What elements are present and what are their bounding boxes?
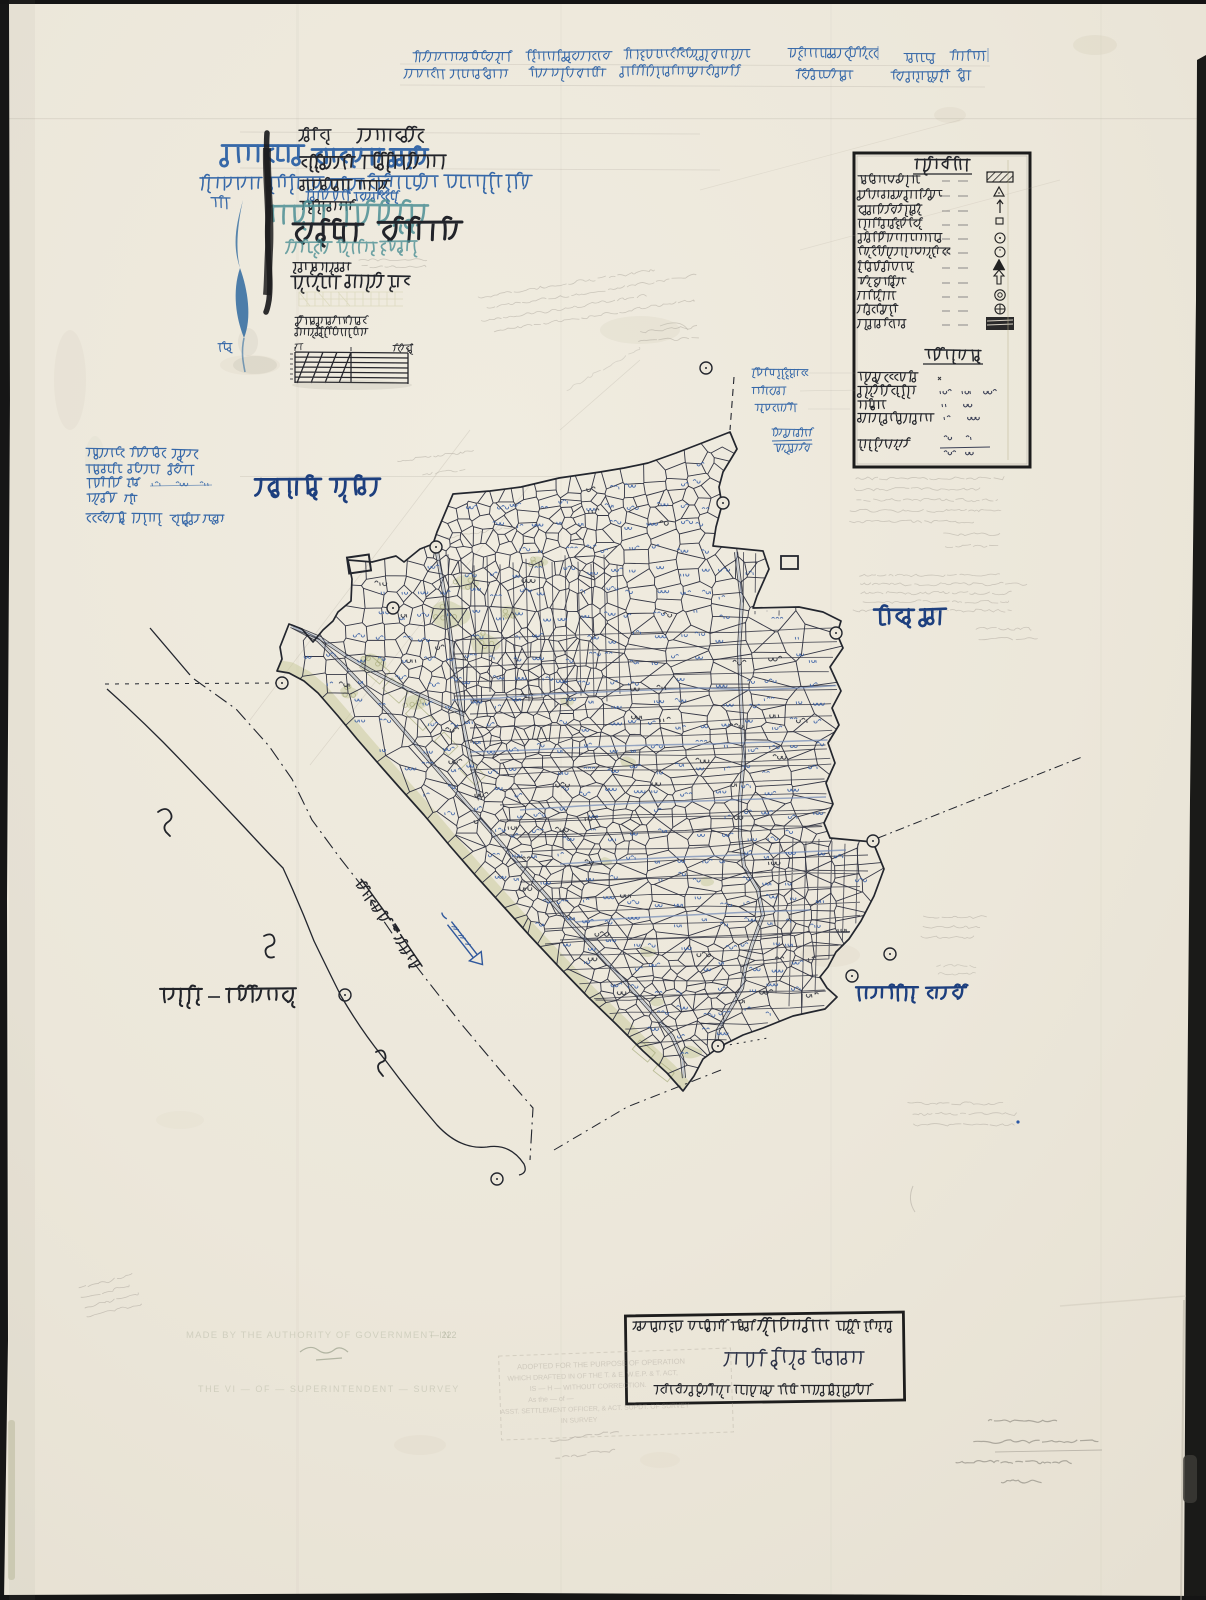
svg-text:— 222: — 222 [430, 1330, 457, 1340]
svg-text:IN SURVEY: IN SURVEY [561, 1417, 598, 1425]
svg-text:MADE BY THE AUTHORITY OF GOVER: MADE BY THE AUTHORITY OF GOVERNMENT IN [186, 1330, 451, 1341]
svg-text:THE VI — OF — SUPERINTENDENT —: THE VI — OF — SUPERINTENDENT — SURVEY [198, 1384, 460, 1394]
